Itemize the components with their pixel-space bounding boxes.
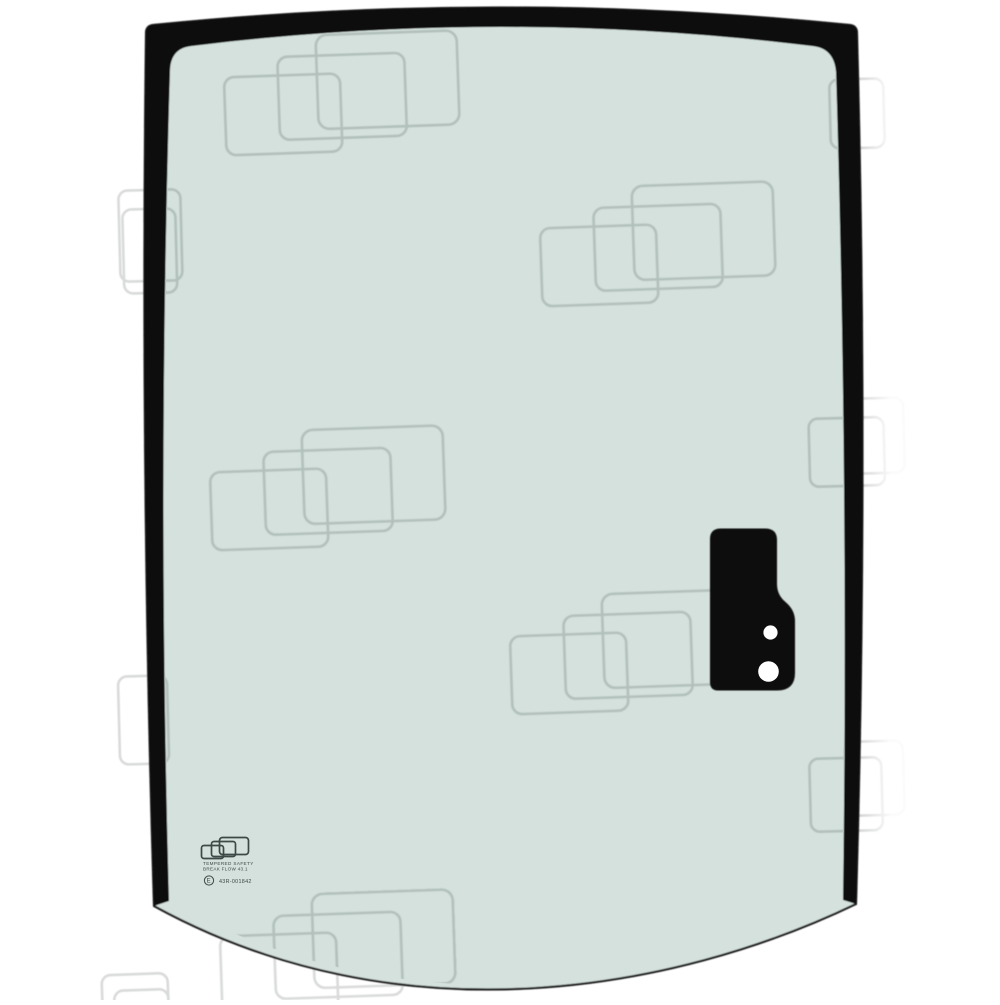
svg-text:BREAK FLOW 43.1: BREAK FLOW 43.1	[203, 867, 248, 872]
svg-text:43R-001842: 43R-001842	[219, 879, 252, 885]
svg-text:TEMPERED SAFETY: TEMPERED SAFETY	[203, 861, 254, 866]
svg-text:E: E	[207, 879, 211, 885]
